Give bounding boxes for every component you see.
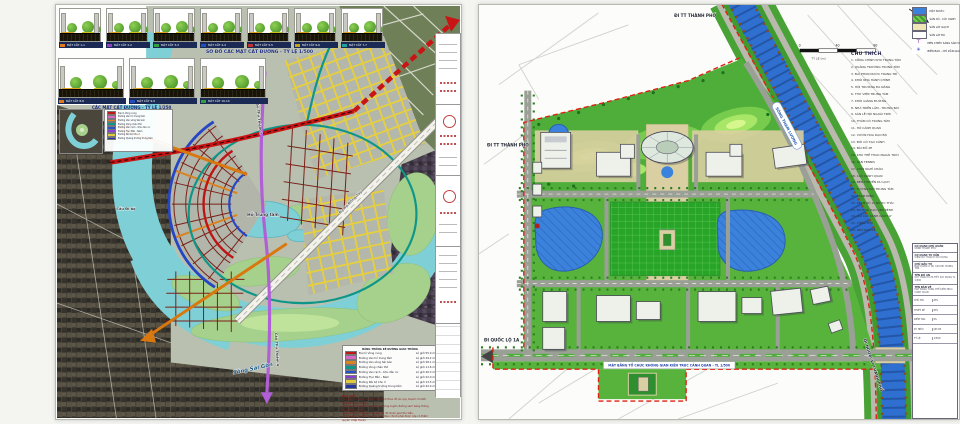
building-edge — [108, 13, 113, 34]
section-caption: MẶT CẮT 5-5 — [247, 42, 291, 48]
cross-section-drawing — [153, 8, 195, 42]
cross-section-drawing — [59, 8, 101, 42]
title-block-cell: THIẾT KẾ — [913, 309, 933, 312]
cross-section-panel: MẶT CẮT 2-2 — [106, 8, 150, 48]
title-block-line: VIỆN QUY HOẠCH XÂY DỰNG — [915, 257, 956, 260]
tree-icon — [93, 75, 107, 89]
note-item: 2. QUẢNG TRƯỜNG TRUNG TÂM — [851, 64, 957, 71]
section-caption: MẶT CẮT 3-3 — [153, 42, 197, 48]
legend-item-label: ĐÈN CHIẾU SÁNG SÂN VƯỜN — [928, 42, 960, 45]
legend-label: Đại lộ Vòng cung — [118, 112, 170, 115]
note-item: 13. ĐỒI CỎ TẠO CẢNH — [851, 139, 957, 146]
building-edge — [188, 13, 193, 34]
right-drawing-sheet: MẶT BẰNG TỔ CHỨC KHÔNG GIAN KIẾN TRÚC CẢ… — [478, 4, 960, 420]
cross-section-panel: MẶT CẮT 10-10 — [200, 58, 268, 104]
section-caption-label: MẶT CẮT 10-10 — [208, 99, 230, 103]
legend-row: Đường Nội bộ khu ởLộ giới 13.3 m — [345, 379, 435, 384]
section-caption-label: MẶT CẮT 8-8 — [66, 99, 84, 103]
legend-label: Đường Ven rạch - Khu dân cư — [359, 370, 416, 374]
ground-hatch — [60, 33, 100, 41]
note-item: 5. HỘI TRƯỜNG ĐA NĂNG — [851, 84, 957, 91]
stone-swatch — [912, 31, 927, 39]
legend-item-label: MẶT NƯỚC — [930, 10, 945, 13]
title-block-cell: 1/500 — [933, 337, 957, 340]
cross-section-drawing — [247, 8, 289, 42]
title-block-row: KIỂM TRAKS — [913, 315, 957, 325]
note-item: 14. BÃI ĐỖ XE — [851, 145, 957, 152]
lake-label: Hồ Trung tâm — [247, 212, 279, 217]
cross-section-row-1: MẶT CẮT 1-1MẶT CẮT 2-2MẶT CẮT 3-3MẶT CẮT… — [59, 8, 385, 48]
building-edge — [61, 13, 66, 34]
legend-value: Lộ giới 42.0 m — [416, 384, 435, 388]
drawing-note: Ghi chú: - Lộ giới các tuyến đường xác đ… — [342, 395, 432, 422]
section-caption: MẶT CẮT 8-8 — [58, 98, 126, 104]
ground-hatch — [154, 33, 194, 41]
scale-label: TỶ LỆ (m) — [810, 56, 825, 61]
note-item: 10. THẢM CỎ TRUNG TÂM — [851, 118, 957, 125]
section-caption: MẶT CẮT 10-10 — [200, 98, 268, 104]
legend-swatch — [345, 384, 357, 389]
cross-section-panel: MẶT CẮT 5-5 — [247, 8, 291, 48]
caption-chip — [60, 44, 65, 47]
to-highway-label: ĐI QUỐC LỘ 1A — [484, 337, 520, 342]
note-item: 24. DẢI CÂY XANH CÁCH LY — [851, 213, 957, 220]
cross-section-drawing — [129, 58, 195, 98]
legend-label: Đường Quảng trường trung tâm — [359, 384, 416, 388]
caption-chip — [201, 44, 206, 47]
caption-chip — [130, 100, 135, 103]
cross-section-row-2: MẶT CẮT 8-8MẶT CẮT 9-9MẶT CẮT 10-10 — [58, 58, 268, 104]
title-block-section: TÊN BẢN VẼMẶT BẰNG TỔNG THỂ KIẾN TRÚC CẢ… — [913, 285, 957, 297]
section-caption-label: MẶT CẮT 5-5 — [255, 43, 273, 47]
to-city-left-label: ĐI TT THÀNH PHỐ — [487, 142, 529, 147]
cross-section-drawing — [294, 8, 336, 42]
to-city-top-label: ĐI TT THÀNH PHỐ — [674, 13, 716, 18]
note-item: 26. NHÀ BẢO VỆ — [851, 227, 957, 234]
water-swatch — [912, 7, 927, 15]
title-block-cell: CHỦ TRÌ — [913, 299, 933, 302]
building-edge — [141, 13, 146, 34]
legend-swatch — [107, 137, 116, 141]
legend-label: Đường Vùng châu thổ — [359, 365, 416, 369]
caption-chip — [248, 44, 253, 47]
title-block-section: CƠ QUAN TƯ VẤNVIỆN QUY HOẠCH XÂY DỰNG — [913, 253, 957, 262]
road-legend: BẢNG THỐNG KÊ ĐƯỜNG GIAO THÔNG Đại lộ Vò… — [342, 345, 438, 391]
cross-section-panel: MẶT CẮT 3-3 — [153, 8, 197, 48]
legend-label: Đường Ven rạch - Khu dân cư — [118, 126, 170, 129]
legend-row: Đường Quảng trường trung tâm — [107, 137, 170, 141]
note-item: 19. BẾN THUYỀN DU LỊCH — [851, 179, 957, 186]
legend-label: Đường Trục Bắc - Nam — [118, 130, 170, 133]
legend-label: Đường Trục Bắc - Nam — [359, 375, 416, 379]
brick-swatch — [912, 23, 927, 31]
legend-label: Đại lộ Vòng cung — [359, 351, 416, 355]
note-item: 3. ĐÀI PHUN NƯỚC TRANG TRÍ — [851, 71, 957, 78]
section-caption-label: MẶT CẮT 1-1 — [67, 43, 85, 47]
cross-section-drawing — [58, 58, 124, 98]
note-item: 20. TƯỢNG ĐÀI TRUNG TÂM — [851, 186, 957, 193]
note-item: 8. NHÀ TRIỂN LÃM - TRƯNG BÀY — [851, 105, 957, 112]
cross-section-panel: MẶT CẮT 7-7 — [341, 8, 385, 48]
note-item: 17. CHÒI NGHỈ CHÂN — [851, 166, 957, 173]
approval-stamp — [443, 190, 456, 203]
cross-section-panel: MẶT CẮT 6-6 — [294, 8, 338, 48]
section-caption-label: MẶT CẮT 9-9 — [137, 99, 155, 103]
title-block-cell: TỶ LỆ — [913, 337, 933, 340]
ground-hatch — [342, 33, 382, 41]
note-item: 4. KHỐI NHÀ HÀNH CHÍNH — [851, 77, 957, 84]
note-item: 1. CỔNG CHÍNH KHU TRUNG TÂM — [851, 57, 957, 64]
note-item: 18. CẦU CẢNH QUAN — [851, 173, 957, 180]
key-map-legend: Đại lộ Vòng cungĐường Ven hồ trung tâmĐư… — [104, 109, 173, 152]
caption-chip — [342, 44, 347, 47]
legend-value: Lộ giới 13.3 m — [416, 380, 435, 384]
section-caption-label: MẶT CẮT 6-6 — [302, 43, 320, 47]
fountain — [660, 165, 674, 179]
title-block-cell: KS — [933, 318, 957, 321]
building-edge — [202, 66, 207, 90]
note-item: 23. ĐƯỜNG DẠO VEN KÊNH — [851, 207, 957, 214]
cross-section-panel: MẶT CẮT 8-8 — [58, 58, 126, 104]
ground-hatch — [248, 33, 288, 41]
left-drawing-sheet: Sông Sài Gòn Hồ Trung tâm Cầu Thủ Thiêm … — [55, 4, 462, 420]
note-item: 15. KHU THỂ THAO NGOÀI TRỜI — [851, 152, 957, 159]
building-edge — [329, 13, 334, 34]
note-item: 21. TRẠM ĐIỆN — [851, 193, 957, 200]
legend-row: Đường Ven hồ trung tâmLộ giới 29.2 m — [345, 355, 435, 360]
title-block-section: CHỦ ĐẦU TƯBAN QUẢN LÝ DỰ ÁN KHU TRUNG TÂ… — [913, 262, 957, 274]
ground-hatch — [201, 89, 265, 97]
lamp-icon: ⊤ — [912, 40, 925, 46]
note-line: - Thông số kỹ thuật chi tiết của từng tu… — [342, 405, 432, 412]
building-edge — [60, 66, 65, 90]
section-caption-label: MẶT CẮT 7-7 — [349, 43, 367, 47]
legend-value: Lộ giới 55.0 m — [416, 351, 435, 355]
legend-label: Đường Ven hồ trung tâm — [359, 356, 416, 360]
building-edge — [131, 66, 136, 90]
material-legend: MẶT NƯỚCSÂN CỎ - CÂY XANHSÂN LÁT GẠCHSÂN… — [912, 7, 958, 55]
legend-label: Đường Nội bộ khu ở — [359, 380, 416, 384]
cross-section-drawing — [200, 8, 242, 42]
cross-section-panel: MẶT CẮT 1-1 — [59, 8, 103, 48]
building-edge — [117, 66, 122, 90]
notes-column: CHÚ THÍCH 1. CỔNG CHÍNH KHU TRUNG TÂM2. … — [851, 52, 957, 234]
sections-title: SƠ ĐỒ CÁC MẶT CẮT ĐƯỜNG - TỶ LỆ 1/500 — [206, 50, 313, 55]
building-edge — [376, 13, 381, 34]
building-edge — [282, 13, 287, 34]
legend-item-label: SÂN CỎ - CÂY XANH — [930, 18, 956, 21]
cross-section-drawing — [341, 8, 383, 42]
title-strip — [435, 33, 461, 397]
section-caption: MẶT CẮT 2-2 — [106, 42, 150, 48]
note-item: 25. CỔNG PHỤ — [851, 220, 957, 227]
key-map-thumbnail — [59, 109, 103, 154]
svg-text:80: 80 — [873, 43, 877, 47]
caption-chip — [107, 44, 112, 47]
ground-hatch — [107, 33, 147, 41]
title-block-row: THIẾT KẾKTS — [913, 306, 957, 316]
approval-stamp — [443, 115, 456, 128]
section-caption-label: MẶT CẮT 2-2 — [114, 43, 132, 47]
title-block-line: BAN QUẢN LÝ DỰ ÁN KHU TRUNG TÂM — [915, 266, 956, 272]
section-caption-label: MẶT CẮT 4-4 — [208, 43, 226, 47]
section-caption: MẶT CẮT 7-7 — [341, 42, 385, 48]
legend-row: Đường Vùng châu thổLộ giới 11.6 m — [345, 365, 435, 370]
legend-value: Lộ giới 29.2 m — [416, 356, 435, 360]
pedestrian-bridge-label: Cầu Đi bộ — [116, 207, 136, 211]
legend-item-label: SÂN LÁT GẠCH — [930, 26, 949, 29]
title-block-cell: KIỂM TRA — [913, 318, 933, 321]
building-edge — [94, 13, 99, 34]
legend-item-label: SÂN LÁT ĐÁ — [930, 34, 945, 37]
title-block-line: QUY HOẠCH CHI TIẾT XÂY DỰNG TL 1/500 — [915, 277, 956, 283]
section-caption-label: MẶT CẮT 3-3 — [161, 43, 179, 47]
section-caption: MẶT CẮT 4-4 — [200, 42, 244, 48]
screenshot-stage: Sông Sài Gòn Hồ Trung tâm Cầu Thủ Thiêm … — [0, 0, 960, 424]
title-block-cell: KTS — [933, 299, 957, 302]
ground-hatch — [295, 33, 335, 41]
title-block-cell: KTS — [933, 309, 957, 312]
title-block-cell: KÝ HIỆU — [913, 328, 933, 331]
cross-section-panel: MẶT CẮT 9-9 — [129, 58, 197, 104]
section-caption: MẶT CẮT 6-6 — [294, 42, 338, 48]
building-edge — [188, 66, 193, 90]
building-edge — [249, 13, 254, 34]
legend-item: ⊤ĐÈN CHIẾU SÁNG SÂN VƯỜN — [912, 39, 958, 47]
title-block-row: TỶ LỆ1/500 — [913, 334, 957, 344]
title-block-line: MẶT BẰNG TỔNG THỂ KIẾN TRÚC CẢNH QUAN — [915, 289, 956, 295]
legend-label: Đường Ven sông Sài Gòn — [118, 119, 170, 122]
building-edge — [235, 13, 240, 34]
tree-icon — [164, 75, 178, 89]
legend-row: Đại lộ Vòng cungLộ giới 55.0 m — [345, 351, 435, 356]
title-block-section: CƠ QUAN CHỦ QUẢNUBND THÀNH PHỐ — [913, 244, 957, 253]
legend-item: SÂN LÁT ĐÁ — [912, 31, 958, 39]
legend-item: MẶT NƯỚC — [912, 7, 958, 15]
note-item: 7. KHỐI GIẢNG ĐƯỜNG — [851, 98, 957, 105]
note-item: 9. SÂN LỄ HỘI NGOÀI TRỜI — [851, 111, 957, 118]
note-item: 11. HỒ CẢNH QUAN — [851, 125, 957, 132]
caption-chip — [154, 44, 159, 47]
legend-row: Đường Ven rạch - Khu dân cưLộ giới 26.3 … — [345, 370, 435, 375]
caption-chip — [201, 100, 206, 103]
svg-text:0: 0 — [799, 43, 801, 47]
title-block-row: KÝ HIỆUQH-05 — [913, 325, 957, 335]
title-block-section: TÊN ĐỒ ÁNQUY HOẠCH CHI TIẾT XÂY DỰNG TL … — [913, 273, 957, 285]
legend-label: Đường Quảng trường trung tâm — [118, 137, 170, 140]
note-item: 16. SÂN TENNIS — [851, 159, 957, 166]
building-edge — [155, 13, 160, 34]
title-block: CƠ QUAN CHỦ QUẢNUBND THÀNH PHỐCƠ QUAN TƯ… — [912, 243, 958, 419]
svg-text:40: 40 — [835, 43, 839, 47]
legend-label: Đường Vùng châu thổ — [118, 123, 170, 126]
legend-item: SÂN LÁT GẠCH — [912, 23, 958, 31]
title-block-line: UBND THÀNH PHỐ — [915, 248, 956, 251]
building-edge — [296, 13, 301, 34]
caption-chip — [59, 100, 64, 103]
legend-value: Lộ giới 22.0 m — [416, 375, 435, 379]
note-item: 12. VƯỜN HOA DẠO BỘ — [851, 132, 957, 139]
inset-key-map: Đại lộ Vòng cungĐường Ven hồ trung tâmĐư… — [59, 109, 173, 152]
ground-hatch — [59, 89, 123, 97]
building-edge — [259, 66, 264, 90]
cross-section-drawing — [200, 58, 266, 98]
legend-row: Đường Quảng trường trung tâmLộ giới 42.0… — [345, 384, 435, 389]
legend-value: Lộ giới 26.3 m — [416, 370, 435, 374]
note-line: - Trong quá trình triển khai, mọi điều c… — [342, 415, 432, 422]
legend-value: Lộ giới 28.1 m — [416, 360, 435, 364]
tree-icon — [235, 75, 249, 89]
ground-hatch — [130, 89, 194, 97]
building-edge — [343, 13, 348, 34]
legend-row: Đường Ven sông Sài GònLộ giới 28.1 m — [345, 360, 435, 365]
building-edge — [202, 13, 207, 34]
legend-value: Lộ giới 11.6 m — [416, 365, 435, 369]
legend-label: Đường Nội bộ khu ở — [118, 133, 170, 136]
cross-section-panel: MẶT CẮT 4-4 — [200, 8, 244, 48]
ground-hatch — [201, 33, 241, 41]
legend-label: Đường Ven sông Sài Gòn — [359, 360, 416, 364]
note-item: 22. TRẠM XỬ LÝ NƯỚC THẢI — [851, 200, 957, 207]
legend-label: Đường Ven hồ trung tâm — [118, 115, 170, 118]
legend-item: SÂN CỎ - CÂY XANH — [912, 15, 958, 23]
title-block-cell: QH-05 — [933, 328, 957, 331]
section-caption: MẶT CẮT 1-1 — [59, 42, 103, 48]
note-item: 6. THƯ VIỆN TRUNG TÂM — [851, 91, 957, 98]
title-block-row: CHỦ TRÌKTS — [913, 296, 957, 306]
section-caption: MẶT CẮT 9-9 — [129, 98, 197, 104]
legend-row: Đường Trục Bắc - NamLộ giới 22.0 m — [345, 374, 435, 379]
caption-chip — [295, 44, 300, 47]
cross-section-drawing — [106, 8, 148, 42]
green-swatch — [912, 15, 927, 23]
